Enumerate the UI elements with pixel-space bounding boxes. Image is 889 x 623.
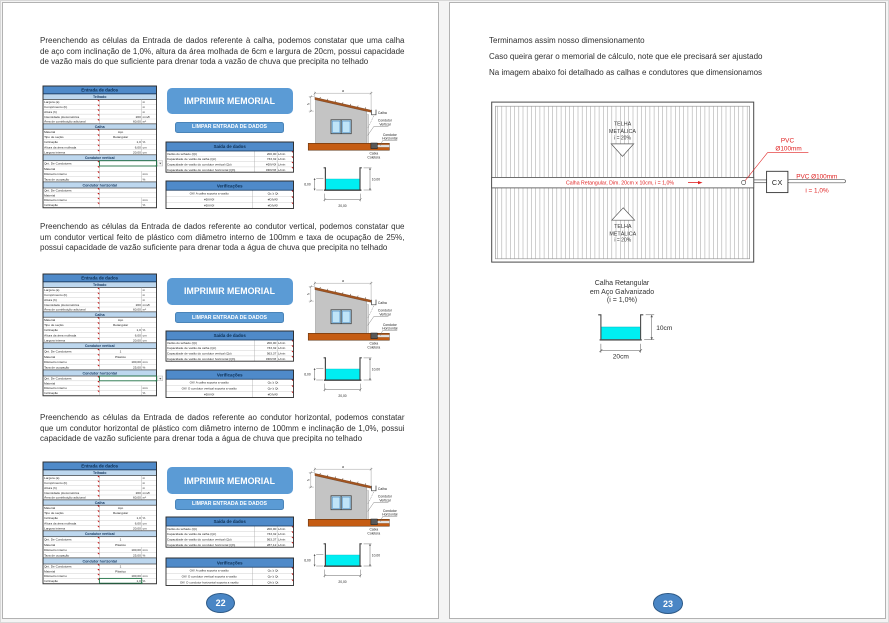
svg-text:mm/h: mm/h bbox=[142, 491, 150, 495]
svg-text:m²: m² bbox=[142, 496, 146, 500]
svg-text:cm: cm bbox=[142, 333, 147, 337]
svg-text:Altura (h): Altura (h) bbox=[44, 110, 57, 114]
svg-text:METÁLICA: METÁLICA bbox=[609, 128, 636, 135]
svg-text:L/min: L/min bbox=[278, 151, 286, 155]
svg-text:Material: Material bbox=[44, 130, 55, 134]
svg-text:Aço: Aço bbox=[117, 318, 123, 322]
svg-text:%: % bbox=[142, 579, 145, 583]
svg-text:1,0: 1,0 bbox=[136, 140, 141, 144]
svg-text:Qnt. De Condutores: Qnt. De Condutores bbox=[44, 565, 72, 569]
svg-text:733,32: 733,32 bbox=[266, 157, 276, 161]
svg-text:Inclinação: Inclinação bbox=[44, 203, 58, 207]
svg-text:6,00: 6,00 bbox=[134, 145, 140, 149]
svg-text:1,0: 1,0 bbox=[136, 328, 141, 332]
svg-text:Área de contribuição adicional: Área de contribuição adicional bbox=[44, 308, 86, 312]
svg-text:Verificações: Verificações bbox=[216, 183, 242, 188]
svg-text:Intensidade pluviométrica: Intensidade pluviométrica bbox=[44, 303, 79, 307]
svg-text:%: % bbox=[142, 203, 145, 207]
svg-text:Diâmetro interno: Diâmetro interno bbox=[44, 198, 67, 202]
svg-text:Entrada de dados: Entrada de dados bbox=[81, 276, 118, 281]
svg-text:OK! A calha suporta a vazão: OK! A calha suporta a vazão bbox=[189, 191, 228, 195]
svg-text:Material: Material bbox=[44, 382, 55, 386]
svg-text:Condutor vertical: Condutor vertical bbox=[84, 532, 114, 536]
svg-text:Inclinação: Inclinação bbox=[44, 328, 58, 332]
svg-text:OK! O condutor vertical suport: OK! O condutor vertical suporta a vazão bbox=[181, 574, 236, 578]
svg-text:mm: mm bbox=[142, 574, 147, 578]
svg-text:Vertical: Vertical bbox=[379, 123, 390, 127]
svg-text:Altura da área molhada: Altura da área molhada bbox=[44, 521, 76, 525]
svg-text:100,00: 100,00 bbox=[131, 574, 141, 578]
svg-text:CX: CX bbox=[772, 178, 783, 187]
svg-text:Saída de dados: Saída de dados bbox=[213, 144, 246, 149]
svg-text:Aço: Aço bbox=[117, 506, 123, 510]
svg-text:cm: cm bbox=[142, 150, 147, 154]
svg-text:a: a bbox=[342, 466, 344, 470]
svg-text:L/min: L/min bbox=[278, 351, 286, 355]
svg-text:L/min: L/min bbox=[278, 527, 286, 531]
svg-text:i = 1,0%: i = 1,0% bbox=[805, 188, 829, 195]
svg-text:Comprimento (b): Comprimento (b) bbox=[44, 293, 67, 297]
svg-text:PVC: PVC bbox=[781, 137, 795, 144]
svg-text:Saída de dados: Saída de dados bbox=[213, 333, 246, 338]
svg-text:Horizontal: Horizontal bbox=[382, 327, 398, 331]
svg-text:10,00: 10,00 bbox=[372, 554, 380, 558]
svg-text:%: % bbox=[142, 328, 145, 332]
svg-text:Comprimento (b): Comprimento (b) bbox=[44, 481, 67, 485]
svg-text:Condutor horizontal: Condutor horizontal bbox=[82, 183, 116, 187]
svg-text:Aço: Aço bbox=[117, 130, 123, 134]
svg-text:200,00: 200,00 bbox=[266, 527, 276, 531]
svg-text:Vazão do telhado (Qt): Vazão do telhado (Qt) bbox=[166, 341, 196, 345]
svg-text:OK! A calha suporta a vazão: OK! A calha suporta a vazão bbox=[189, 381, 228, 385]
svg-text:100,00: 100,00 bbox=[131, 548, 141, 552]
svg-text:Diâmetro interno: Diâmetro interno bbox=[44, 360, 67, 364]
svg-text:6,00: 6,00 bbox=[134, 333, 140, 337]
svg-text:L/min: L/min bbox=[278, 162, 286, 166]
svg-text:a: a bbox=[342, 279, 344, 283]
svg-text:Qv ≥ Qt: Qv ≥ Qt bbox=[267, 387, 278, 391]
svg-text:Taxa de ocupação: Taxa de ocupação bbox=[44, 177, 69, 181]
svg-text:Condutor horizontal: Condutor horizontal bbox=[82, 371, 116, 375]
svg-text:PVC Ø100mm: PVC Ø100mm bbox=[796, 173, 837, 180]
svg-text:Coletora: Coletora bbox=[367, 532, 380, 536]
svg-text:Coletora: Coletora bbox=[367, 346, 380, 350]
svg-text:Capacidade de vazão da calha (: Capacidade de vazão da calha (Qc) bbox=[166, 157, 215, 161]
svg-text:1,0: 1,0 bbox=[136, 516, 141, 520]
svg-text:Qnt. De Condutores: Qnt. De Condutores bbox=[44, 188, 72, 192]
svg-text:733,32: 733,32 bbox=[266, 532, 276, 536]
svg-text:Horizontal: Horizontal bbox=[382, 137, 398, 141]
svg-text:Inclinação: Inclinação bbox=[44, 391, 58, 395]
svg-text:200,00: 200,00 bbox=[266, 341, 276, 345]
svg-text:Diâmetro interno: Diâmetro interno bbox=[44, 386, 67, 390]
svg-text:Intensidade pluviométrica: Intensidade pluviométrica bbox=[44, 491, 79, 495]
svg-text:#DIV/0!: #DIV/0! bbox=[267, 198, 277, 202]
svg-text:Taxa de ocupação: Taxa de ocupação bbox=[44, 366, 69, 370]
svg-text:1: 1 bbox=[119, 538, 121, 542]
svg-text:Capacidade de vazão do conduto: Capacidade de vazão do condutor horizont… bbox=[166, 167, 234, 171]
svg-text:Calha: Calha bbox=[378, 301, 387, 305]
svg-text:Qh ≥ Qt: Qh ≥ Qt bbox=[267, 580, 278, 584]
svg-text:Horizontal: Horizontal bbox=[382, 513, 398, 517]
svg-text:Capacidade de vazão do conduto: Capacidade de vazão do condutor horizont… bbox=[166, 356, 234, 360]
svg-text:mm: mm bbox=[142, 386, 147, 390]
svg-text:i = 20%: i = 20% bbox=[614, 238, 631, 244]
svg-text:6,00: 6,00 bbox=[304, 183, 311, 187]
svg-text:#DIV/0!: #DIV/0! bbox=[265, 162, 275, 166]
svg-text:L/min: L/min bbox=[278, 157, 286, 161]
svg-text:cm: cm bbox=[142, 526, 147, 530]
svg-text:Entrada de dados: Entrada de dados bbox=[81, 87, 118, 92]
svg-text:Diâmetro interno: Diâmetro interno bbox=[44, 574, 67, 578]
svg-text:Altura (h): Altura (h) bbox=[44, 298, 57, 302]
svg-text:Coletora: Coletora bbox=[367, 156, 380, 160]
svg-text:733,32: 733,32 bbox=[266, 346, 276, 350]
svg-text:Plástico: Plástico bbox=[115, 355, 126, 359]
svg-text:Verificações: Verificações bbox=[216, 372, 242, 377]
svg-text:%: % bbox=[142, 553, 145, 557]
svg-text:Material: Material bbox=[44, 543, 55, 547]
svg-text:Qc ≥ Qt: Qc ≥ Qt bbox=[267, 381, 278, 385]
svg-text:287,12: 287,12 bbox=[266, 543, 276, 547]
svg-text:Vertical: Vertical bbox=[379, 499, 390, 503]
svg-text:6,00: 6,00 bbox=[134, 521, 140, 525]
svg-text:L/min: L/min bbox=[278, 532, 286, 536]
svg-text:6,00: 6,00 bbox=[304, 559, 311, 563]
svg-text:Comprimento (b): Comprimento (b) bbox=[44, 105, 67, 109]
svg-text:Telhado: Telhado bbox=[92, 283, 106, 287]
svg-text:Condutor vertical: Condutor vertical bbox=[84, 156, 114, 160]
svg-text:Vertical: Vertical bbox=[379, 313, 390, 317]
svg-text:Plástico: Plástico bbox=[115, 569, 126, 573]
svg-text:Retangular: Retangular bbox=[112, 323, 127, 327]
svg-text:L/min: L/min bbox=[278, 346, 286, 350]
svg-text:L/min: L/min bbox=[278, 543, 286, 547]
svg-text:Diâmetro interno: Diâmetro interno bbox=[44, 172, 67, 176]
svg-text:#DIV/0!: #DIV/0! bbox=[265, 356, 275, 360]
svg-text:cm: cm bbox=[142, 521, 147, 525]
svg-text:60,00: 60,00 bbox=[133, 496, 141, 500]
svg-text:h: h bbox=[307, 103, 311, 105]
svg-text:Calha Retangular, Dim. 20cm x: Calha Retangular, Dim. 20cm x 10cm, i = … bbox=[566, 181, 674, 187]
svg-text:Taxa de ocupação: Taxa de ocupação bbox=[44, 553, 69, 557]
svg-text:TELHA: TELHA bbox=[614, 224, 632, 230]
svg-text:Retangular: Retangular bbox=[112, 135, 127, 139]
svg-text:Diâmetro interno: Diâmetro interno bbox=[44, 548, 67, 552]
svg-text:Calha: Calha bbox=[94, 124, 105, 128]
svg-text:20,00: 20,00 bbox=[133, 150, 141, 154]
svg-text:cm: cm bbox=[142, 339, 147, 343]
svg-text:10,00: 10,00 bbox=[372, 367, 380, 371]
svg-text:Largura interna: Largura interna bbox=[44, 339, 65, 343]
svg-text:Inclinação: Inclinação bbox=[44, 579, 58, 583]
svg-text:Calha: Calha bbox=[94, 313, 105, 317]
svg-text:Qc ≥ Qt: Qc ≥ Qt bbox=[267, 568, 278, 572]
svg-text:6,00: 6,00 bbox=[304, 372, 311, 376]
svg-text:h: h bbox=[307, 480, 311, 482]
svg-text:Retangular: Retangular bbox=[112, 511, 127, 515]
svg-text:Saída de dados: Saída de dados bbox=[213, 519, 246, 524]
svg-text:10cm: 10cm bbox=[656, 325, 673, 332]
svg-text:Calha: Calha bbox=[378, 487, 387, 491]
svg-text:Material: Material bbox=[44, 318, 55, 322]
svg-text:#DIV/0!: #DIV/0! bbox=[204, 204, 214, 208]
svg-text:Largura interna: Largura interna bbox=[44, 150, 65, 154]
svg-text:563,37: 563,37 bbox=[266, 537, 276, 541]
svg-text:Inclinação: Inclinação bbox=[44, 516, 58, 520]
svg-text:Largura (a): Largura (a) bbox=[44, 100, 59, 104]
svg-text:Área de contribuição adicional: Área de contribuição adicional bbox=[44, 496, 86, 500]
svg-text:Qnt. De Condutores: Qnt. De Condutores bbox=[44, 161, 72, 165]
svg-text:Altura da área molhada: Altura da área molhada bbox=[44, 145, 76, 149]
svg-text:Capacidade de vazão do conduto: Capacidade de vazão do condutor vertical… bbox=[166, 162, 231, 166]
svg-text:#DIV/0!: #DIV/0! bbox=[265, 167, 275, 171]
svg-text:#DIV/0!: #DIV/0! bbox=[267, 393, 277, 397]
svg-text:20cm: 20cm bbox=[613, 353, 630, 360]
svg-text:a: a bbox=[342, 89, 344, 93]
svg-text:1,0: 1,0 bbox=[136, 579, 141, 583]
svg-text:200: 200 bbox=[135, 491, 140, 495]
svg-text:Condutor horizontal: Condutor horizontal bbox=[82, 559, 116, 563]
svg-text:OK! A calha suporta a vazão: OK! A calha suporta a vazão bbox=[189, 568, 228, 572]
svg-text:OK! O condutor vertical suport: OK! O condutor vertical suporta a vazão bbox=[181, 387, 236, 391]
svg-text:L/min: L/min bbox=[278, 341, 286, 345]
svg-text:25,00: 25,00 bbox=[133, 553, 141, 557]
svg-text:h: h bbox=[307, 293, 311, 295]
svg-text:mm: mm bbox=[142, 360, 147, 364]
svg-text:Largura interna: Largura interna bbox=[44, 526, 65, 530]
svg-text:#DIV/0!: #DIV/0! bbox=[204, 198, 214, 202]
svg-text:1: 1 bbox=[119, 350, 121, 354]
svg-text:%: % bbox=[142, 516, 145, 520]
svg-text:Altura da área molhada: Altura da área molhada bbox=[44, 333, 76, 337]
svg-text:20,00: 20,00 bbox=[338, 581, 346, 585]
svg-text:Tipo de seção: Tipo de seção bbox=[44, 323, 64, 327]
svg-text:25,00: 25,00 bbox=[133, 366, 141, 370]
svg-text:m²: m² bbox=[142, 308, 146, 312]
svg-text:%: % bbox=[142, 391, 145, 395]
svg-text:60,00: 60,00 bbox=[133, 119, 141, 123]
svg-text:563,37: 563,37 bbox=[266, 351, 276, 355]
svg-text:Largura (a): Largura (a) bbox=[44, 288, 59, 292]
svg-text:Capacidade de vazão da calha (: Capacidade de vazão da calha (Qc) bbox=[166, 532, 215, 536]
svg-text:mm/h: mm/h bbox=[142, 303, 150, 307]
svg-text:%: % bbox=[142, 140, 145, 144]
svg-text:Inclinação: Inclinação bbox=[44, 140, 58, 144]
svg-text:20,00: 20,00 bbox=[133, 339, 141, 343]
svg-text:Qnt. De Condutores: Qnt. De Condutores bbox=[44, 350, 72, 354]
svg-text:Entrada de dados: Entrada de dados bbox=[81, 464, 118, 469]
svg-text:200,00: 200,00 bbox=[266, 151, 276, 155]
svg-text:Material: Material bbox=[44, 355, 55, 359]
svg-text:1: 1 bbox=[119, 565, 121, 569]
svg-text:200: 200 bbox=[135, 114, 140, 118]
svg-text:#DIV/0!: #DIV/0! bbox=[267, 204, 277, 208]
svg-text:Tipo de seção: Tipo de seção bbox=[44, 135, 64, 139]
svg-text:cm: cm bbox=[142, 145, 147, 149]
svg-text:200: 200 bbox=[135, 303, 140, 307]
svg-text:Material: Material bbox=[44, 166, 55, 170]
svg-text:Qnt. De Condutores: Qnt. De Condutores bbox=[44, 377, 72, 381]
svg-text:OK! O condutor horizontal supo: OK! O condutor horizontal suporta a vazã… bbox=[179, 580, 238, 584]
svg-text:100,00: 100,00 bbox=[131, 360, 141, 364]
svg-text:Plástico: Plástico bbox=[115, 543, 126, 547]
svg-text:Qnt. De Condutores: Qnt. De Condutores bbox=[44, 538, 72, 542]
svg-text:Vazão do telhado (Qt): Vazão do telhado (Qt) bbox=[166, 527, 196, 531]
svg-text:Capacidade de vazão do conduto: Capacidade de vazão do condutor vertical… bbox=[166, 351, 231, 355]
svg-text:L/min: L/min bbox=[278, 537, 286, 541]
svg-text:20,00: 20,00 bbox=[133, 526, 141, 530]
svg-text:L/min: L/min bbox=[278, 167, 286, 171]
svg-text:Verificações: Verificações bbox=[216, 560, 242, 565]
svg-text:mm: mm bbox=[142, 172, 147, 176]
svg-text:Intensidade pluviométrica: Intensidade pluviométrica bbox=[44, 114, 79, 118]
svg-text:i = 20%: i = 20% bbox=[614, 136, 631, 142]
svg-text:mm/h: mm/h bbox=[142, 114, 150, 118]
svg-text:Material: Material bbox=[44, 506, 55, 510]
svg-text:Capacidade de vazão do conduto: Capacidade de vazão do condutor horizont… bbox=[166, 543, 234, 547]
svg-text:Ø100mm: Ø100mm bbox=[775, 145, 801, 152]
svg-text:Qc ≥ Qt: Qc ≥ Qt bbox=[267, 191, 278, 195]
svg-text:TELHA: TELHA bbox=[614, 122, 632, 128]
svg-text:Telhado: Telhado bbox=[92, 95, 106, 99]
svg-text:Calha: Calha bbox=[94, 501, 105, 505]
svg-text:Altura (h): Altura (h) bbox=[44, 486, 57, 490]
svg-text:Qv ≥ Qt: Qv ≥ Qt bbox=[267, 574, 278, 578]
svg-text:Condutor vertical: Condutor vertical bbox=[84, 344, 114, 348]
svg-text:Tipo de seção: Tipo de seção bbox=[44, 511, 64, 515]
svg-text:60,00: 60,00 bbox=[133, 308, 141, 312]
svg-text:20,00: 20,00 bbox=[338, 204, 346, 208]
svg-text:#DIV/0!: #DIV/0! bbox=[204, 393, 214, 397]
svg-text:Capacidade de vazão do conduto: Capacidade de vazão do condutor vertical… bbox=[166, 537, 231, 541]
svg-text:Telhado: Telhado bbox=[92, 471, 106, 475]
svg-text:%: % bbox=[142, 177, 145, 181]
svg-text:Vazão do telhado (Qt): Vazão do telhado (Qt) bbox=[166, 151, 196, 155]
svg-text:20,00: 20,00 bbox=[338, 394, 346, 398]
svg-text:Material: Material bbox=[44, 193, 55, 197]
svg-text:Largura (a): Largura (a) bbox=[44, 476, 59, 480]
svg-text:%: % bbox=[142, 366, 145, 370]
svg-text:METÁLICA: METÁLICA bbox=[609, 231, 636, 238]
svg-text:Área de contribuição adicional: Área de contribuição adicional bbox=[44, 119, 86, 123]
svg-text:mm: mm bbox=[142, 548, 147, 552]
svg-text:L/min: L/min bbox=[278, 356, 286, 360]
svg-text:10,00: 10,00 bbox=[372, 178, 380, 182]
svg-text:mm: mm bbox=[142, 198, 147, 202]
svg-text:Capacidade de vazão da calha (: Capacidade de vazão da calha (Qc) bbox=[166, 346, 215, 350]
svg-text:Material: Material bbox=[44, 569, 55, 573]
svg-text:Calha: Calha bbox=[378, 111, 387, 115]
svg-text:m²: m² bbox=[142, 119, 146, 123]
